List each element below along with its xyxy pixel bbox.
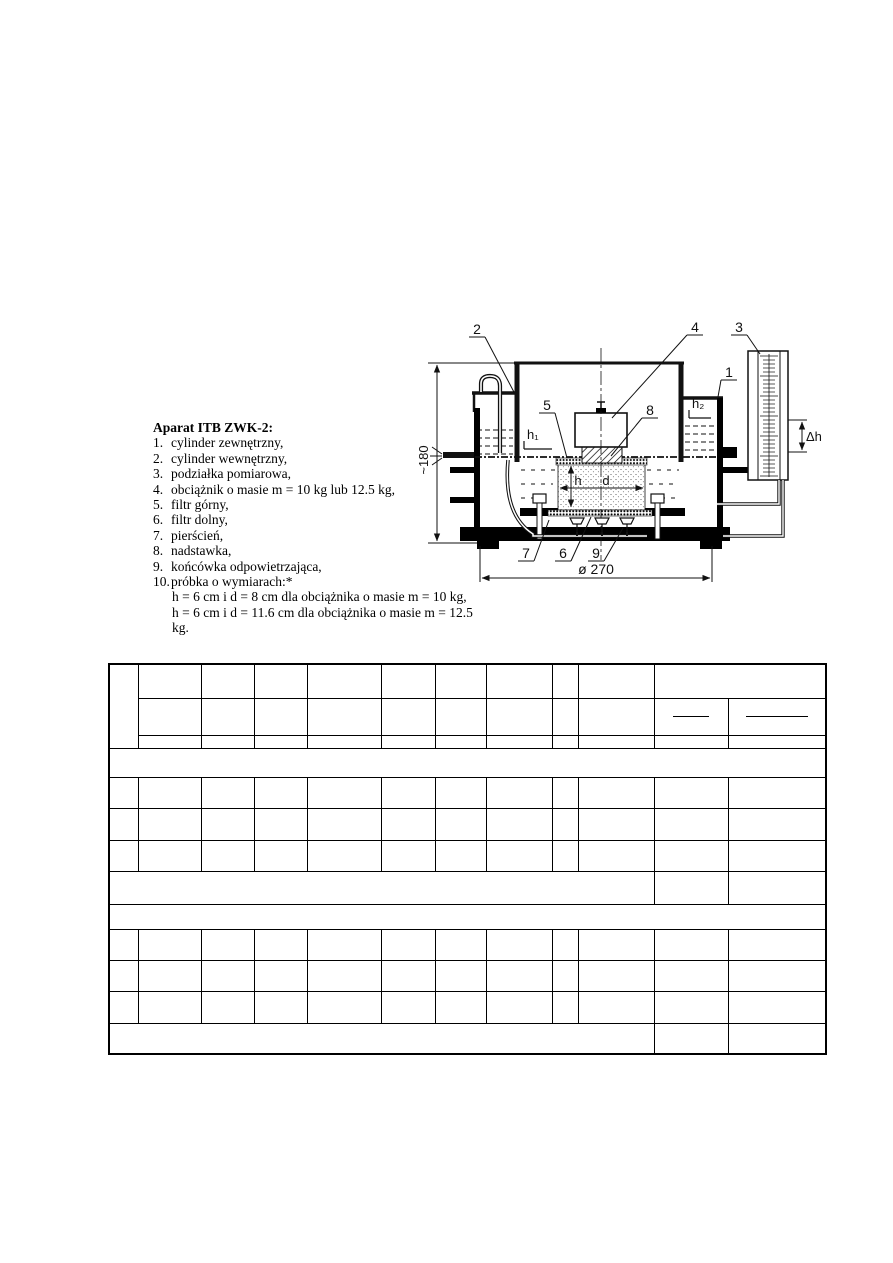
table-cell xyxy=(254,698,307,735)
table-cell xyxy=(381,664,435,698)
table-cell xyxy=(654,929,728,960)
table-cell xyxy=(307,698,381,735)
item-number: 7. xyxy=(153,528,171,543)
table-cell xyxy=(201,777,254,808)
dim-height-label: ~180 xyxy=(416,445,431,474)
table-cell xyxy=(201,840,254,871)
table-cell xyxy=(109,960,138,991)
table-cell xyxy=(486,929,552,960)
part-label-8: 8 xyxy=(646,402,654,418)
part-label-4: 4 xyxy=(691,319,699,335)
table-cell xyxy=(654,735,728,748)
table-cell xyxy=(654,808,728,840)
dimension-dh xyxy=(788,420,807,452)
h1-label: h₁ xyxy=(527,427,539,442)
table-cell xyxy=(201,991,254,1023)
diagram-svg: ~180 xyxy=(415,308,893,618)
table-cell xyxy=(654,664,826,698)
table-cell xyxy=(435,929,486,960)
table-cell xyxy=(109,664,138,748)
item-number: 3. xyxy=(153,466,171,481)
item-text: nadstawka, xyxy=(171,543,231,558)
table-cell xyxy=(381,777,435,808)
item-number: 4. xyxy=(153,482,171,497)
diagram-shape xyxy=(474,408,480,540)
table-cell xyxy=(201,960,254,991)
item-number: 8. xyxy=(153,543,171,558)
diagram-shape xyxy=(655,503,660,539)
table-cell xyxy=(138,808,201,840)
summary-row xyxy=(109,1023,826,1054)
table-cell xyxy=(654,777,728,808)
table-cell xyxy=(138,777,201,808)
section-band-row xyxy=(109,748,826,777)
dim-dh-label: Δh xyxy=(806,429,822,444)
table-cell xyxy=(138,929,201,960)
table-cell xyxy=(552,929,578,960)
dim-diameter-label: ø 270 xyxy=(578,561,614,577)
table-cell xyxy=(307,960,381,991)
header-row-3 xyxy=(109,735,826,748)
table-cell xyxy=(578,735,654,748)
diagram-shape xyxy=(723,447,737,458)
table-cell xyxy=(728,808,826,840)
table-cell xyxy=(138,840,201,871)
table-cell xyxy=(307,840,381,871)
table-cell xyxy=(435,960,486,991)
fraction-bar xyxy=(673,716,709,717)
table-cell xyxy=(138,698,201,735)
table-cell xyxy=(552,777,578,808)
table-cell xyxy=(109,871,654,904)
diagram-shape xyxy=(651,494,664,503)
table-cell xyxy=(381,991,435,1023)
diagram-shape xyxy=(450,467,476,473)
table-cell xyxy=(552,735,578,748)
dim-d-label: d xyxy=(602,473,609,488)
header-row-1 xyxy=(109,664,826,698)
table-cell xyxy=(552,698,578,735)
diagram-shape xyxy=(555,413,567,458)
data-row xyxy=(109,777,826,808)
table-cell xyxy=(728,929,826,960)
table-cell xyxy=(435,991,486,1023)
fraction-bar xyxy=(746,716,808,717)
table-cell xyxy=(728,991,826,1023)
summary-row xyxy=(109,871,826,904)
table-cell xyxy=(728,777,826,808)
table-cell xyxy=(109,1023,654,1054)
table-cell xyxy=(381,960,435,991)
diagram-shape xyxy=(450,497,476,503)
table-cell xyxy=(486,840,552,871)
table-cell xyxy=(138,960,201,991)
part-label-2: 2 xyxy=(473,321,481,337)
table-cell xyxy=(552,840,578,871)
table-cell xyxy=(109,929,138,960)
table-cell xyxy=(307,991,381,1023)
item-text: końcówka odpowietrzająca, xyxy=(171,559,322,574)
diagram-shape xyxy=(481,376,500,453)
data-row xyxy=(109,960,826,991)
item-text: pierścień, xyxy=(171,528,223,543)
measuring-scale xyxy=(748,351,788,480)
table-cell xyxy=(486,735,552,748)
table-cell xyxy=(381,735,435,748)
h2-label: h₂ xyxy=(692,396,704,411)
item-text: podziałka pomiarowa, xyxy=(171,466,291,481)
table-cell xyxy=(254,777,307,808)
table-cell xyxy=(654,840,728,871)
table-cell xyxy=(435,840,486,871)
diagram-shape xyxy=(685,426,715,450)
table-cell xyxy=(435,777,486,808)
table-cell xyxy=(728,1023,826,1054)
part-label-1: 1 xyxy=(725,364,733,380)
dim-h-label: h xyxy=(574,473,581,488)
item-number: 6. xyxy=(153,512,171,527)
table-cell xyxy=(254,991,307,1023)
table-cell xyxy=(552,991,578,1023)
diagram-shape xyxy=(620,518,634,524)
diagram-shape xyxy=(700,541,722,549)
table-cell xyxy=(578,664,654,698)
table-cell xyxy=(201,698,254,735)
diagram-shape xyxy=(717,480,779,504)
table-cell xyxy=(552,664,578,698)
fraction-bar-cell xyxy=(654,698,728,735)
table-cell xyxy=(138,735,201,748)
item-number: 5. xyxy=(153,497,171,512)
table-cell xyxy=(254,808,307,840)
item-text: obciążnik o masie m = 10 kg lub 12.5 kg, xyxy=(171,482,395,497)
table-cell xyxy=(381,840,435,871)
table-cell xyxy=(109,991,138,1023)
outflow-strokes xyxy=(430,447,442,465)
part-label-6: 6 xyxy=(559,545,567,561)
table-cell xyxy=(307,735,381,748)
diagram-shape xyxy=(718,380,721,397)
table-cell xyxy=(728,960,826,991)
data-row xyxy=(109,840,826,871)
table-cell xyxy=(486,808,552,840)
table-cell xyxy=(435,808,486,840)
item-text: cylinder wewnętrzny, xyxy=(171,451,287,466)
table-cell xyxy=(201,735,254,748)
table-cell xyxy=(728,840,826,871)
table-cell xyxy=(109,748,826,777)
data-row xyxy=(109,808,826,840)
item-text: filtr górny, xyxy=(171,497,229,512)
blank-measurement-table xyxy=(108,663,827,1055)
table-cell xyxy=(552,808,578,840)
table-cell xyxy=(654,1023,728,1054)
diagram-shape xyxy=(723,480,783,536)
table-cell xyxy=(254,960,307,991)
table-cell xyxy=(381,698,435,735)
table-cell xyxy=(254,929,307,960)
table-cell xyxy=(109,777,138,808)
table-cell xyxy=(728,735,826,748)
part-label-9: 9 xyxy=(592,545,600,561)
diagram-shape xyxy=(537,503,542,539)
item-number: 9. xyxy=(153,559,171,574)
table-cell xyxy=(435,664,486,698)
table-cell xyxy=(109,808,138,840)
table-cell xyxy=(578,698,654,735)
table-cell xyxy=(578,777,654,808)
table-cell xyxy=(254,664,307,698)
part-label-7: 7 xyxy=(522,545,530,561)
item-number: 2. xyxy=(153,451,171,466)
table-cell xyxy=(109,840,138,871)
item-text: próbka o wymiarach:* xyxy=(171,574,292,589)
bottom-filter xyxy=(548,510,652,516)
table-cell xyxy=(578,960,654,991)
section-band-row xyxy=(109,904,826,929)
table-cell xyxy=(435,735,486,748)
table-cell xyxy=(201,929,254,960)
table-cell xyxy=(654,991,728,1023)
table-cell xyxy=(435,698,486,735)
document-page: { "apparatus": { "title": "Aparat ITB ZW… xyxy=(0,0,893,1263)
item-text: filtr dolny, xyxy=(171,512,228,527)
table-cell xyxy=(201,664,254,698)
table-cell xyxy=(486,777,552,808)
table-cell xyxy=(109,904,826,929)
diagram-shape xyxy=(722,467,749,473)
diagram-shape xyxy=(477,430,513,454)
table-cell xyxy=(201,808,254,840)
diagram-shape xyxy=(723,480,783,536)
table-cell xyxy=(307,664,381,698)
table-cell xyxy=(307,929,381,960)
table-cell xyxy=(307,777,381,808)
overflow-chamber xyxy=(430,376,515,465)
diagram-shape xyxy=(748,351,788,480)
diagram-shape xyxy=(460,527,730,541)
table-cell xyxy=(381,808,435,840)
table-cell xyxy=(486,664,552,698)
item-number: 1. xyxy=(153,435,171,450)
table-cell xyxy=(138,664,201,698)
table-cell xyxy=(728,871,826,904)
diagram-shape xyxy=(481,376,500,453)
part-label-3: 3 xyxy=(735,319,743,335)
table-cell xyxy=(654,960,728,991)
apparatus-cross-section-diagram: ~180 xyxy=(415,308,893,618)
table-cell xyxy=(552,960,578,991)
table-cell xyxy=(486,960,552,991)
table-cell xyxy=(138,991,201,1023)
header-row-2 xyxy=(109,698,826,735)
table-cell xyxy=(578,991,654,1023)
part-label-5: 5 xyxy=(543,397,551,413)
table-cell xyxy=(486,698,552,735)
diagram-shape xyxy=(533,494,546,503)
data-row xyxy=(109,929,826,960)
diagram-shape xyxy=(595,518,609,524)
table-cell xyxy=(654,871,728,904)
table-cell xyxy=(578,929,654,960)
table-cell xyxy=(254,840,307,871)
data-row xyxy=(109,991,826,1023)
fraction-bar-cell xyxy=(728,698,826,735)
table-cell xyxy=(486,991,552,1023)
diagram-shape xyxy=(570,518,584,524)
table-cell xyxy=(254,735,307,748)
diagram-shape xyxy=(717,480,779,504)
item-number: 10. xyxy=(153,574,171,589)
item-text: cylinder zewnętrzny, xyxy=(171,435,283,450)
table-cell xyxy=(578,808,654,840)
table-cell xyxy=(381,929,435,960)
table-cell xyxy=(307,808,381,840)
table-cell xyxy=(578,840,654,871)
